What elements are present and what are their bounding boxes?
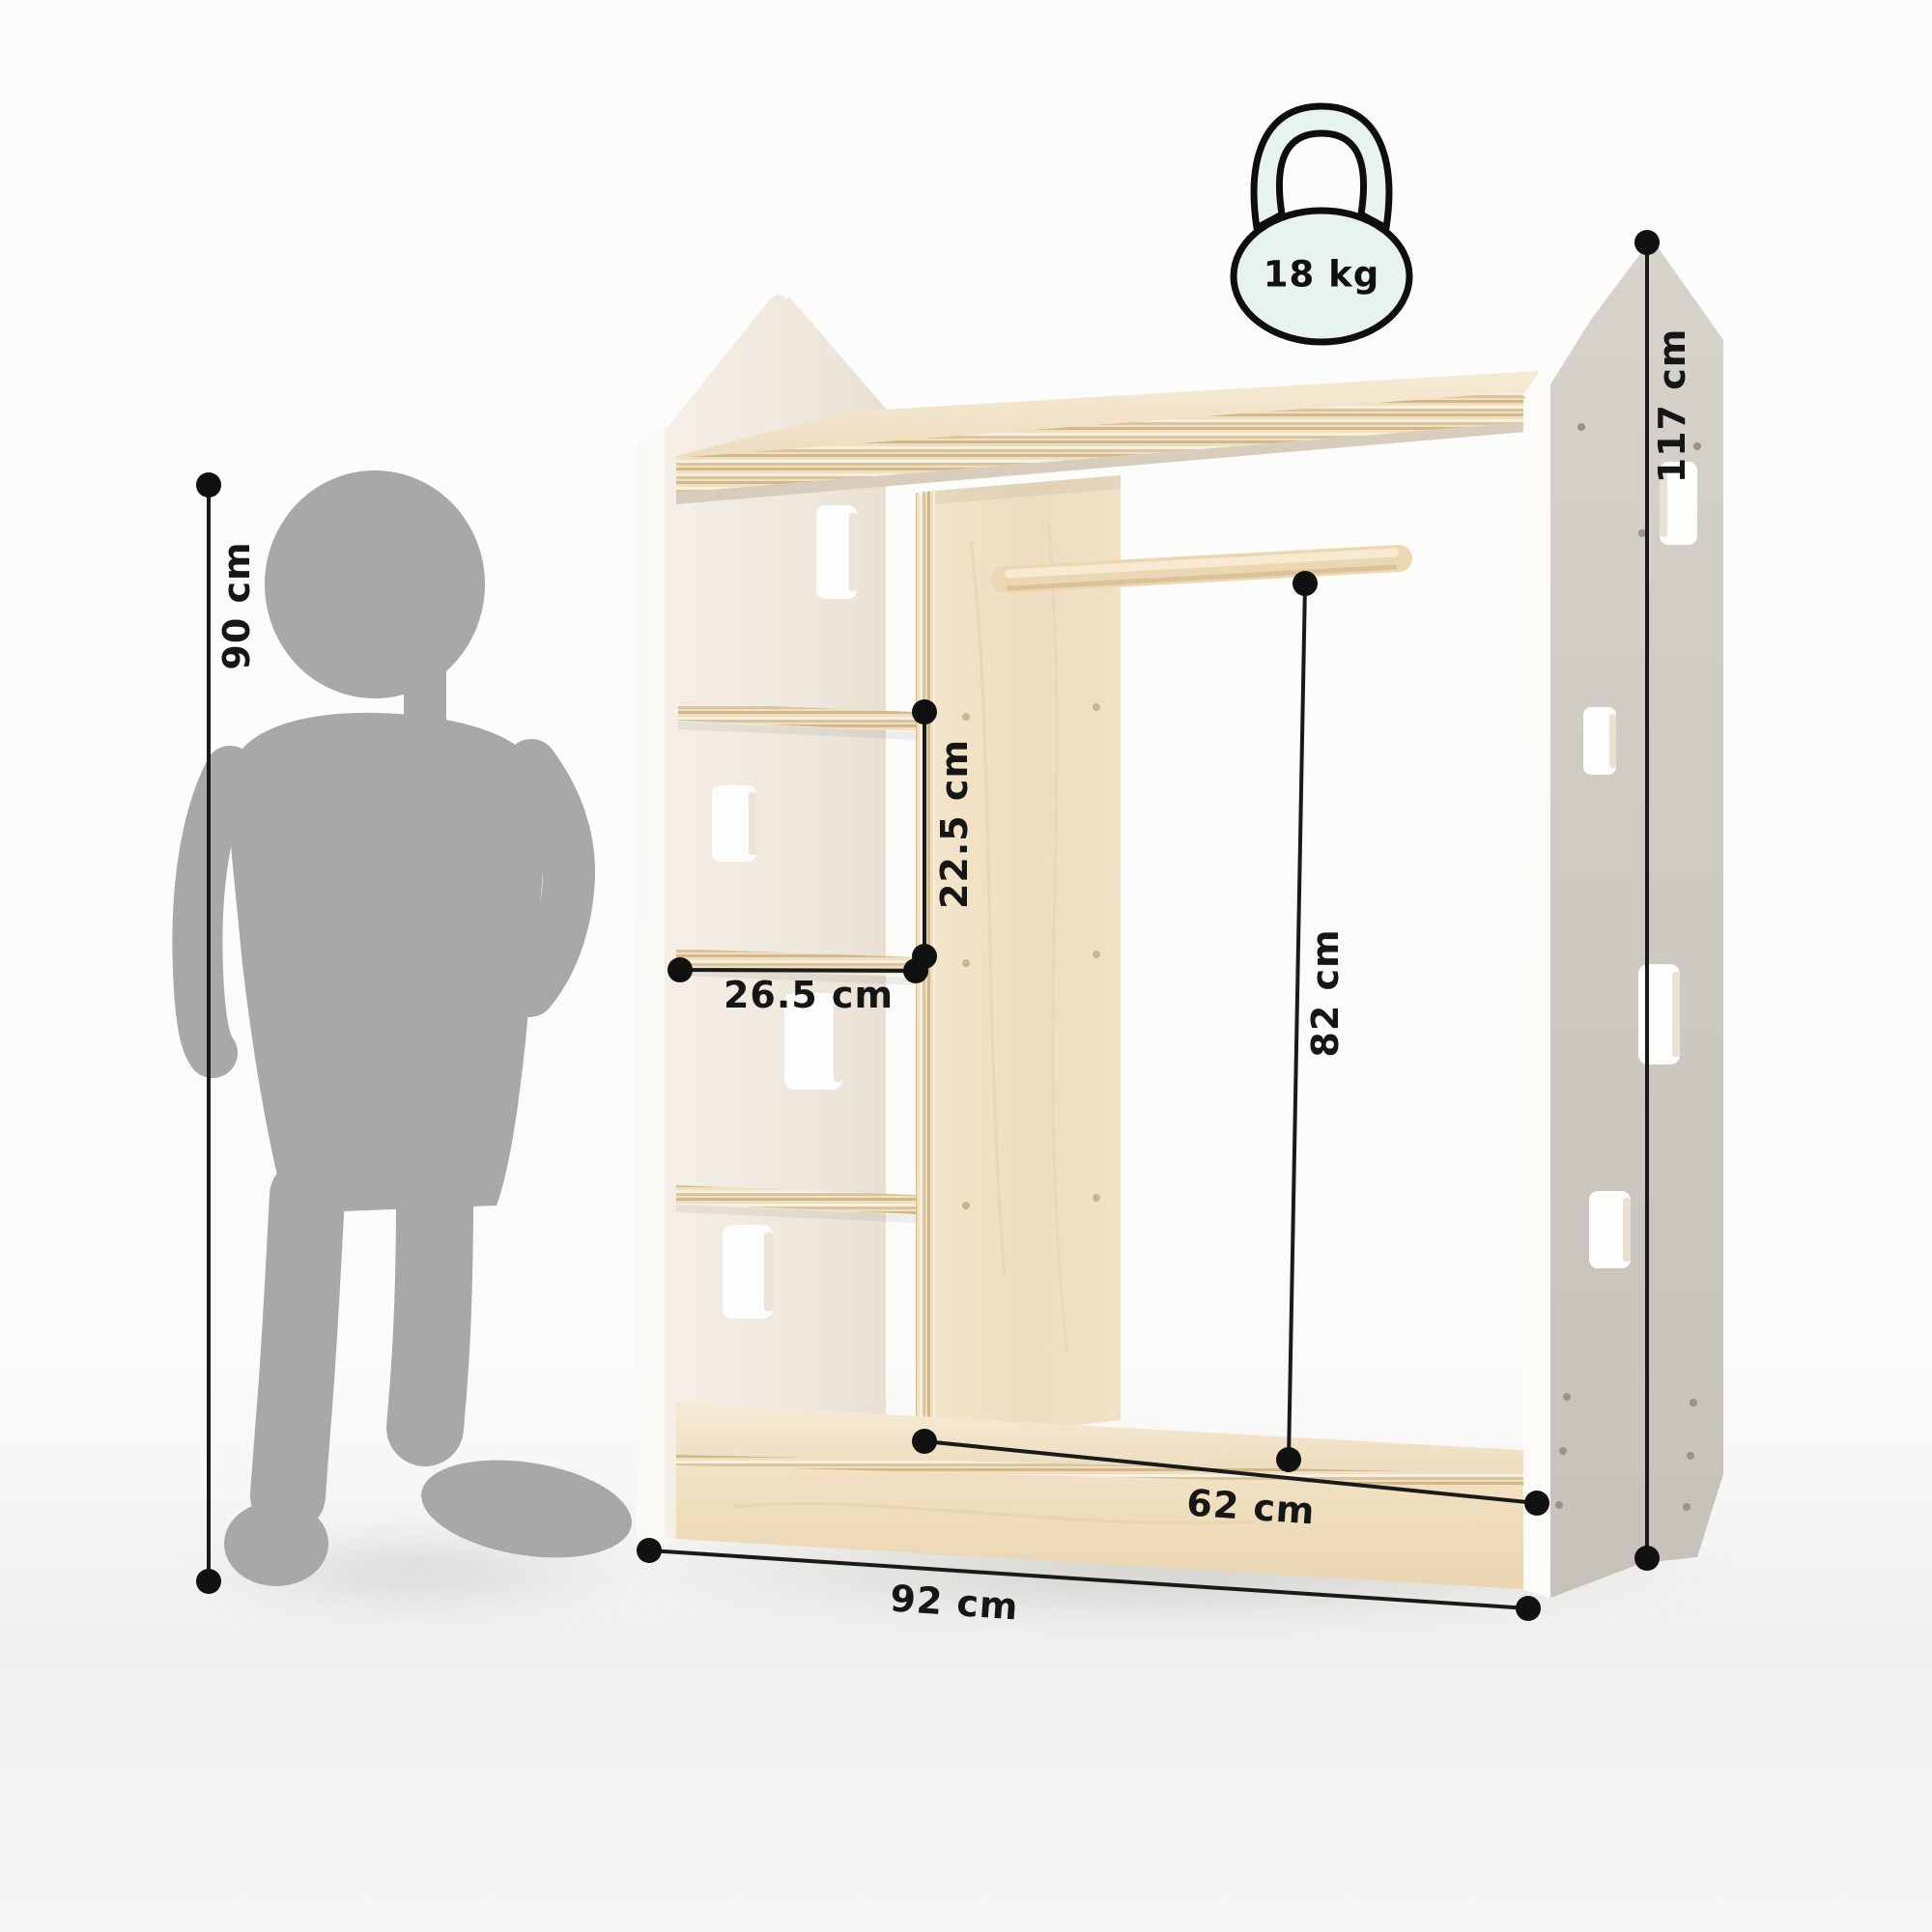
weight-badge-label: 18 kg — [1264, 254, 1379, 296]
divider-panel — [916, 475, 1121, 1443]
silhouette-head — [265, 470, 485, 698]
wardrobe — [636, 239, 1723, 1598]
silhouette-torso — [229, 713, 545, 1213]
kettlebell-weight-icon — [1234, 106, 1409, 342]
total-width-label: 92 cm — [889, 1577, 1020, 1628]
side-height-label: 117 cm — [1651, 328, 1693, 484]
right-panel-gray-face — [1550, 239, 1723, 1598]
diagram-artwork — [0, 0, 1932, 1932]
silhouette-left-arm — [197, 771, 230, 1053]
inner-width-label: 62 cm — [1185, 1481, 1317, 1532]
child-height-label: 90 cm — [215, 541, 258, 669]
silhouette-right-leg — [425, 1196, 435, 1428]
shelf-width-label: 26.5 cm — [724, 974, 894, 1016]
silhouette-left-leg — [288, 1196, 307, 1495]
divider-face — [935, 475, 1121, 1441]
right-panel-edge-strip — [1523, 384, 1550, 1598]
child-silhouette — [197, 470, 639, 1586]
shelf-gap-label: 22.5 cm — [933, 739, 976, 909]
silhouette-right-foot — [414, 1446, 639, 1571]
product-dimension-diagram: 90 cm 117 cm 22.5 cm 26.5 cm 82 cm 62 cm… — [0, 0, 1932, 1932]
silhouette-left-foot — [224, 1501, 328, 1586]
rod-height-label: 82 cm — [1304, 928, 1347, 1057]
